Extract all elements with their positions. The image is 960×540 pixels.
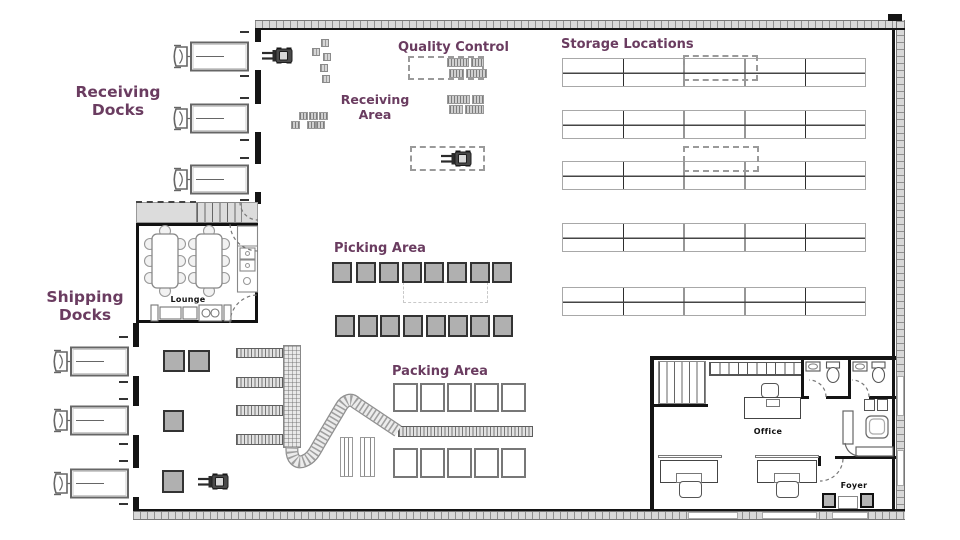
picking-pallet [424, 262, 444, 283]
desk-chair [776, 481, 799, 498]
side-chair [864, 399, 875, 411]
window [832, 512, 868, 519]
label-packing-area: Packing Area [392, 364, 488, 379]
dock-bumper [119, 336, 128, 338]
conveyor [236, 348, 283, 358]
conveyor [398, 426, 533, 437]
pallet-strip [291, 121, 300, 129]
desk-monitor [766, 399, 780, 407]
loose-pallet [323, 53, 331, 61]
dock-bumper [119, 381, 128, 383]
picking-pallet [492, 262, 512, 283]
pallet-strip [465, 105, 484, 114]
pallet-strip [299, 112, 308, 120]
floor-pallet [188, 350, 210, 372]
shipping-wall-segment [133, 376, 139, 406]
interior-wall [801, 359, 804, 399]
interior-wall [835, 456, 896, 459]
manager-chair [761, 383, 779, 398]
storage-rack-row [562, 287, 866, 316]
loose-pallet [312, 48, 320, 56]
window [897, 376, 904, 416]
conveyor-junction [283, 345, 301, 448]
pallet-strip [447, 95, 470, 104]
packing-table [420, 383, 445, 412]
desk-chair [679, 481, 702, 498]
shipping-wall-segment [133, 435, 139, 468]
floor-plan-geometry [0, 0, 960, 540]
picking-pallet [358, 315, 378, 337]
loose-pallet [321, 39, 329, 47]
label-lounge: Lounge [158, 295, 218, 304]
pallet-strip [309, 112, 318, 120]
packing-table [393, 383, 418, 412]
loose-pallet [320, 64, 328, 72]
packing-table [447, 383, 472, 412]
foyer-chair [822, 493, 836, 508]
staging-zone [410, 146, 485, 171]
picking-pallet [379, 262, 399, 283]
picking-pallet [470, 262, 490, 283]
picking-pallet [447, 262, 467, 283]
packing-table [447, 448, 472, 478]
pallet-strip [466, 69, 487, 78]
warehouse-floor-plan: Receiving Docks Shipping Docks Quality C… [0, 0, 960, 540]
dock-bumper [240, 31, 249, 33]
wall-right-inner [892, 28, 895, 511]
packing-table [501, 383, 526, 412]
picking-pallet [426, 315, 446, 337]
packing-table [420, 448, 445, 478]
wall-corner [888, 14, 902, 21]
platform-stairs [196, 202, 242, 223]
dock-bumper [119, 398, 128, 400]
packing-table [501, 448, 526, 478]
window [688, 512, 738, 519]
pallet-strip [449, 105, 463, 114]
picking-pallet [448, 315, 468, 337]
interior-wall [848, 359, 851, 399]
wall-right [896, 20, 905, 512]
dock-bumper [119, 503, 128, 505]
floor-pallet [163, 350, 185, 372]
picking-pallet [402, 262, 422, 283]
dock-bumper [240, 75, 249, 77]
receiving-wall-segment [255, 70, 261, 104]
floor-rails [360, 437, 375, 477]
shipping-wall-segment [133, 497, 139, 511]
label-foyer: Foyer [824, 481, 884, 490]
receiving-wall-segment [255, 29, 261, 42]
wall-top-inner [255, 28, 905, 30]
office-stairs [658, 361, 706, 404]
interior-wall [801, 396, 809, 399]
picking-pallet [332, 262, 352, 283]
wall-bottom-inner [133, 509, 905, 511]
shipping-wall-segment [133, 323, 139, 347]
floor-pallet [163, 410, 184, 432]
window [897, 450, 904, 486]
label-storage-locations: Storage Locations [561, 37, 694, 52]
picking-pallet [356, 262, 376, 283]
pallet-strip [471, 58, 484, 67]
label-quality-control: Quality Control [398, 40, 509, 55]
storage-rack-row [562, 223, 866, 252]
picking-pallet [335, 315, 355, 337]
interior-wall [826, 396, 851, 399]
floor-rails [340, 437, 353, 477]
desk-shelf [755, 455, 819, 458]
staging-zone [683, 55, 758, 81]
label-picking-area: Picking Area [334, 241, 426, 256]
picking-pallet [493, 315, 513, 337]
label-receiving-area: Receiving Area [325, 92, 425, 122]
loose-pallet [322, 75, 330, 83]
packing-table [474, 448, 499, 478]
picking-pallet [380, 315, 400, 337]
conveyor [236, 434, 283, 445]
label-office: Office [738, 427, 798, 436]
receiving-wall-segment [255, 132, 261, 164]
office-wall-left [650, 356, 654, 510]
foyer-table [838, 496, 858, 509]
dock-bumper [240, 199, 249, 201]
lounge-room [136, 223, 258, 323]
picking-pallet [470, 315, 490, 337]
desk-shelf [658, 455, 722, 458]
dock-bumper [240, 97, 249, 99]
side-chair [877, 399, 888, 411]
window [762, 512, 817, 519]
pallet-strip [447, 58, 469, 67]
storage-rack-row [562, 110, 866, 139]
foyer-chair [860, 493, 874, 508]
label-shipping-docks: Shipping Docks [30, 288, 140, 325]
conveyor [236, 405, 283, 416]
dock-bumper [119, 460, 128, 462]
pallet-strip [316, 121, 325, 129]
platform-edge [136, 201, 196, 203]
packing-table [474, 383, 499, 412]
label-receiving-docks: Receiving Docks [62, 83, 174, 120]
office-wall-top [650, 356, 896, 360]
packing-table [393, 448, 418, 478]
dock-bumper [119, 443, 128, 445]
staging-zone-faint [403, 282, 488, 303]
dock-bumper [240, 157, 249, 159]
staging-zone [683, 146, 759, 172]
conveyor [236, 377, 283, 388]
office-lockers [709, 362, 802, 376]
office-stairs-wall [650, 404, 708, 407]
picking-pallet [403, 315, 423, 337]
floor-pallet [162, 470, 184, 493]
pallet-strip [449, 69, 464, 78]
pallet-strip [307, 121, 316, 129]
dock-bumper [240, 139, 249, 141]
pallet-strip [472, 95, 484, 104]
